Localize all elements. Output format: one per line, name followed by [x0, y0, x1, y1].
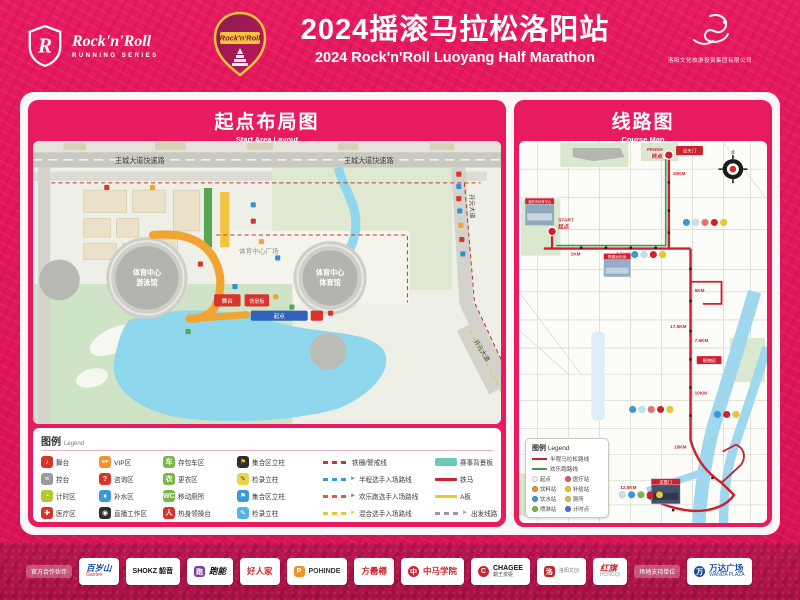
sponsor-subname: HONGQI	[600, 573, 620, 578]
landmark-center-photo: 隋唐洛阳城	[604, 254, 631, 277]
yellow-strip	[220, 192, 229, 247]
course-legend-item: 喷淋站	[532, 505, 563, 513]
legend-item-label: 集合区立柱	[252, 457, 285, 467]
legend-swatch-icon: 车	[163, 456, 175, 468]
legend-swatch-icon: ⚑	[237, 490, 249, 502]
sponsor-name: POHINDE	[309, 568, 341, 575]
expressway-road: 王城大道快速路 王城大道快速路	[33, 152, 501, 167]
content-card: 起点布局图 Start Area Layout	[20, 92, 780, 535]
legend-item-label: 存包车区	[178, 457, 204, 467]
legend-item-label: 半程选手入场路线	[359, 474, 412, 484]
natatorium-label-1: 体育中心	[133, 268, 162, 277]
legend-item: ♦补水区	[99, 490, 161, 502]
landmark-garden-label: 植物园	[703, 357, 716, 364]
org-name: 洛阳文化旅游投资集团有限公司	[645, 56, 775, 64]
legend-swatch-icon: 衣	[163, 473, 175, 485]
legend-item: ►半程选手入场路线	[323, 473, 433, 485]
start-area-map: 王城大道快速路 王城大道快速路 王城大道	[33, 141, 501, 424]
legend-arrow-icon: ►	[350, 493, 356, 499]
legend-arrow-icon: ►	[462, 510, 468, 516]
landmark-start-label: 洛阳市体育中心	[528, 199, 552, 204]
legend-item-label: 欢乐跑选手入场路线	[359, 491, 418, 501]
course-legend-item-label: 补给站	[573, 485, 589, 493]
legend-item-label: 咨询区	[114, 474, 134, 484]
legend-item-label: 补水区	[114, 491, 134, 501]
legend-swatch-icon: ✎	[237, 473, 249, 485]
legend-item-label: 热身领操台	[178, 508, 211, 518]
dragon-icon	[679, 10, 741, 50]
legend-swatch-solid	[435, 495, 457, 498]
legend-dot-icon	[565, 476, 571, 482]
legend-dot-icon	[565, 506, 571, 512]
legend-swatch-icon: WC	[163, 490, 175, 502]
km-5: 5KM	[695, 288, 705, 293]
legend-item-label: 混合选手入场路线	[359, 508, 412, 518]
compass-north-label: 北	[731, 149, 735, 155]
legend-item: A板	[435, 490, 501, 502]
backdrop-block: 背景板	[245, 294, 269, 306]
brand-logo: R Rock'n'Roll RUNNING SERIES	[26, 24, 159, 68]
course-panel: 线路图 Course Map	[514, 100, 772, 527]
sponsor-logo-pohinde: PPOHINDE	[287, 558, 348, 585]
legend-item-label: 集合区立柱	[252, 491, 285, 501]
course-map: 北	[519, 141, 767, 523]
legend-item: 车存包车区	[163, 456, 235, 468]
road-label-east: 开元大道	[467, 194, 476, 219]
canal	[591, 332, 604, 420]
sponsor-name: 方罍樽	[361, 567, 387, 576]
landmark-south-photo: 定鼎门	[651, 478, 680, 504]
legend-item-label: 舞台	[56, 457, 69, 467]
legend-item: ►出发线路	[435, 507, 501, 519]
legend-title-en: Legend	[64, 441, 84, 447]
sponsor-logo-shokz: SHOKZ 韶音	[126, 558, 180, 585]
sponsor-logo-hongqi: 红旗HONGQI	[593, 558, 627, 585]
gymnasium-building: 体育中心 体育馆	[293, 241, 366, 315]
legend-item: ◉直播工作区	[99, 507, 161, 519]
start-label-en: START	[558, 217, 574, 222]
stage-block: 舞台	[214, 294, 240, 306]
sponsor-name: 中马学院	[423, 567, 457, 576]
sponsor-logo-wanda: 万万达广场WANDA PLAZA	[687, 558, 751, 585]
legend-item: ◔计时区	[41, 490, 97, 502]
course-legend-title-cn: 图例	[532, 445, 546, 452]
legend-item: ?咨询区	[99, 473, 161, 485]
km-7-5: 7.5KM	[695, 338, 709, 343]
legend-item-label: 移动厕所	[178, 491, 204, 501]
course-legend-item: 起点	[532, 475, 563, 483]
legend-item-label: 更衣区	[178, 474, 198, 484]
sponsor-label-left: 官方合作伙伴	[26, 565, 72, 578]
brand-series-label: RUNNING SERIES	[72, 53, 159, 59]
sponsor-name: 跑能	[209, 567, 226, 576]
legend-swatch-icon: ◔	[41, 490, 53, 502]
gymnasium-label-2: 体育馆	[319, 278, 340, 287]
chagee-icon: C	[478, 566, 489, 577]
course-legend-item-label: 喷淋站	[540, 505, 556, 513]
legend-swatch-icon: ✚	[41, 507, 53, 519]
sponsor-subname: WANDA PLAZA	[709, 573, 744, 578]
legend-swatch-icon: ♦	[99, 490, 111, 502]
legend-item-label: 计时区	[56, 491, 76, 501]
legend-grid: ♪舞台VIPVIP区车存包车区⚑集合区立柱铁栅/警戒线赛事背景板≡控台?咨询区衣…	[41, 456, 493, 519]
brand-name: Rock'n'Roll	[72, 34, 159, 50]
legend-item: ►混合选手入场路线	[323, 507, 433, 519]
legend-item: 铁栅/警戒线	[323, 456, 433, 468]
legend-swatch-solid	[435, 478, 457, 481]
luoyang-seal-icon: 洛	[544, 566, 555, 577]
legend-title: 图例 Legend	[41, 433, 493, 451]
sponsor-logo-paoneng: 跑跑能	[187, 558, 233, 585]
legend-item-label: 赛事背景板	[460, 457, 493, 467]
legend-swatch-icon: ?	[99, 473, 111, 485]
legend-item-label: 出发线路	[471, 508, 497, 518]
poster-root: R Rock'n'Roll RUNNING SERIES Rock'n'Roll	[0, 0, 800, 600]
stage-label: 舞台	[222, 297, 234, 305]
roundabout-west	[39, 260, 80, 301]
start-area-panel: 起点布局图 Start Area Layout	[28, 100, 506, 527]
legend-dot-icon	[532, 496, 538, 502]
start-arch-banner: 起点	[251, 311, 323, 321]
course-legend-title-en: Legend	[548, 445, 570, 452]
course-legend-item-label: 医疗站	[573, 475, 589, 483]
course-legend: 图例 Legend 半程马拉松路线欢乐跑路线 起点医疗站饮料站补给站饮水站厕所喷…	[525, 438, 609, 518]
legend-swatch-dash	[323, 478, 349, 481]
legend-title-cn: 图例	[41, 433, 61, 448]
km-20: 20KM	[673, 171, 686, 176]
km-2-5: 2.5KM	[616, 252, 630, 257]
landmark-start-photo: 洛阳市体育中心	[525, 198, 554, 225]
legend-item: 赛事背景板	[435, 456, 501, 468]
event-badge-icon: Rock'n'Roll	[212, 10, 268, 83]
start-label-cn: 起点	[557, 223, 569, 231]
km-10: 10KM	[695, 390, 708, 395]
legend-item-label: 检录立柱	[252, 474, 278, 484]
legend-item: ►欢乐跑选手入场路线	[323, 490, 433, 502]
legend-item-label: 铁栅/警戒线	[352, 457, 387, 467]
legend-arrow-icon: ►	[350, 510, 356, 516]
legend-item: ⚑集合区立柱	[237, 456, 321, 468]
road-label-expressway-2: 王城大道快速路	[344, 156, 394, 165]
badge-ribbon-text: Rock'n'Roll	[220, 34, 262, 43]
km-15: 15KM	[674, 445, 687, 450]
legend-swatch-dash	[323, 461, 349, 464]
route-swatch	[532, 458, 547, 460]
landmark-garden: 植物园	[697, 356, 722, 364]
course-legend-item-label: 饮料站	[540, 485, 556, 493]
legend-item-label: 医疗区	[56, 508, 76, 518]
course-legend-item: 厕所	[565, 495, 602, 503]
legend-swatch-icon: ≡	[41, 473, 53, 485]
legend-arrow-icon: ►	[350, 476, 356, 482]
legend-swatch-block	[435, 458, 457, 466]
legend-swatch-icon: ♪	[41, 456, 53, 468]
green-strip	[204, 188, 212, 247]
sponsor-logo-fangleizun: 方罍樽	[354, 558, 394, 585]
legend-dot-icon	[532, 476, 538, 482]
legend-item: ✎检录立柱	[237, 507, 321, 519]
sponsor-name: SHOKZ 韶音	[133, 568, 173, 575]
sponsor-logo-zhongma: 中中马学院	[401, 558, 464, 585]
zhongma-icon: 中	[408, 566, 419, 577]
legend-swatch-icon: ⚑	[237, 456, 249, 468]
legend-swatch-icon: ✎	[237, 507, 249, 519]
sponsor-bar: 官方合作伙伴百岁山GantenSHOKZ 韶音跑跑能好人家PPOHINDE方罍樽…	[0, 543, 800, 600]
south-building	[310, 333, 347, 370]
route-label: 半程马拉松路线	[550, 455, 589, 463]
backdrop-label: 背景板	[249, 298, 264, 305]
course-legend-item-label: 厕所	[573, 495, 584, 503]
legend-item: ✎检录立柱	[237, 473, 321, 485]
finish-label-cn: 终点	[652, 152, 663, 160]
start-panel-title: 起点布局图	[33, 107, 501, 134]
legend-swatch-icon: ◉	[99, 507, 111, 519]
legend-item: ♪舞台	[41, 456, 97, 468]
page-title: 2024摇滚马拉松洛阳站	[280, 14, 630, 47]
course-legend-item: 饮料站	[532, 485, 563, 493]
gymnasium-label-1: 体育中心	[316, 268, 345, 277]
legend-item: 铁马	[435, 473, 501, 485]
sponsor-subname: 霸王茶姬	[493, 573, 523, 578]
km-17-5: 17.5KM	[670, 324, 686, 329]
legend-swatch-icon: 人	[163, 507, 175, 519]
landmark-finish-label: 应天门	[683, 148, 696, 155]
course-legend-title: 图例 Legend	[532, 443, 602, 453]
legend-item-label: 铁马	[460, 474, 473, 484]
legend-dot-icon	[565, 496, 571, 502]
legend-swatch-dash	[323, 512, 349, 515]
natatorium-building: 体育中心 游泳馆	[106, 237, 187, 319]
course-legend-route: 半程马拉松路线	[532, 455, 602, 463]
pohinde-icon: P	[294, 566, 305, 577]
legend-swatch-dash	[435, 512, 461, 515]
sponsor-logo-luoyang-seal: 洛洛阳文创	[537, 558, 586, 585]
km-12-5: 12.5KM	[620, 485, 636, 490]
legend-dot-icon	[532, 486, 538, 492]
legend-item: ✚医疗区	[41, 507, 97, 519]
course-legend-item: 医疗站	[565, 475, 602, 483]
legend-swatch-icon: VIP	[99, 456, 111, 468]
sponsor-logo-haorenjia: 好人家	[240, 558, 280, 585]
sponsor-logo-ganten: 百岁山Ganten	[79, 558, 119, 585]
course-legend-route: 欢乐跑路线	[532, 465, 602, 473]
km-1: 1KM	[571, 252, 581, 257]
header: R Rock'n'Roll RUNNING SERIES Rock'n'Roll	[0, 0, 800, 92]
legend-item-label: 检录立柱	[252, 508, 278, 518]
legend-item: 衣更衣区	[163, 473, 235, 485]
landmark-south-label: 定鼎门	[660, 478, 672, 484]
legend-item: 人热身领操台	[163, 507, 235, 519]
page-subtitle: 2024 Rock'n'Roll Luoyang Half Marathon	[280, 50, 630, 66]
start-arch-label: 起点	[274, 313, 286, 320]
course-legend-item: 饮水站	[532, 495, 563, 503]
legend-swatch-dash	[323, 495, 349, 498]
svg-text:R: R	[37, 34, 52, 58]
legend-item-label: 直播工作区	[114, 508, 147, 518]
course-legend-item-label: 计时点	[573, 505, 589, 513]
course-legend-item: 计时点	[565, 505, 602, 513]
legend-item-label: A板	[460, 491, 471, 501]
sponsor-subname: 洛阳文创	[559, 569, 579, 574]
course-panel-title: 线路图	[519, 107, 767, 134]
legend-dot-icon	[565, 486, 571, 492]
route-swatch	[532, 468, 547, 470]
org-logo: 洛阳文化旅游投资集团有限公司	[645, 10, 775, 64]
route-label: 欢乐跑路线	[550, 465, 578, 473]
shield-icon: R	[26, 24, 64, 68]
start-legend: 图例 Legend ♪舞台VIPVIP区车存包车区⚑集合区立柱铁栅/警戒线赛事背…	[33, 428, 501, 522]
finish-label-en: FINISH	[647, 147, 663, 152]
legend-item-label: VIP区	[114, 457, 131, 467]
legend-item: VIPVIP区	[99, 456, 161, 468]
paoneng-icon: 跑	[194, 566, 205, 577]
sponsor-subname: Ganten	[86, 573, 112, 578]
course-legend-item-label: 起点	[540, 475, 551, 483]
legend-item: WC移动厕所	[163, 490, 235, 502]
sponsor-label-right: 场地支持单位	[634, 565, 680, 578]
sponsor-logo-chagee: CCHAGEE霸王茶姬	[471, 558, 530, 585]
legend-dot-icon	[532, 506, 538, 512]
north-buildings	[33, 141, 501, 152]
sponsor-name: 好人家	[247, 567, 273, 576]
legend-item-label: 控台	[56, 474, 69, 484]
course-legend-item-label: 饮水站	[540, 495, 556, 503]
legend-item: ≡控台	[41, 473, 97, 485]
plaza-label: 体育中心广场	[239, 246, 279, 255]
natatorium-label-2: 游泳馆	[136, 278, 157, 287]
wanda-icon: 万	[694, 566, 705, 577]
legend-item: ⚑集合区立柱	[237, 490, 321, 502]
course-legend-item: 补给站	[565, 485, 602, 493]
landmark-finish: 应天门	[676, 146, 703, 155]
road-label-expressway: 王城大道快速路	[115, 156, 165, 165]
